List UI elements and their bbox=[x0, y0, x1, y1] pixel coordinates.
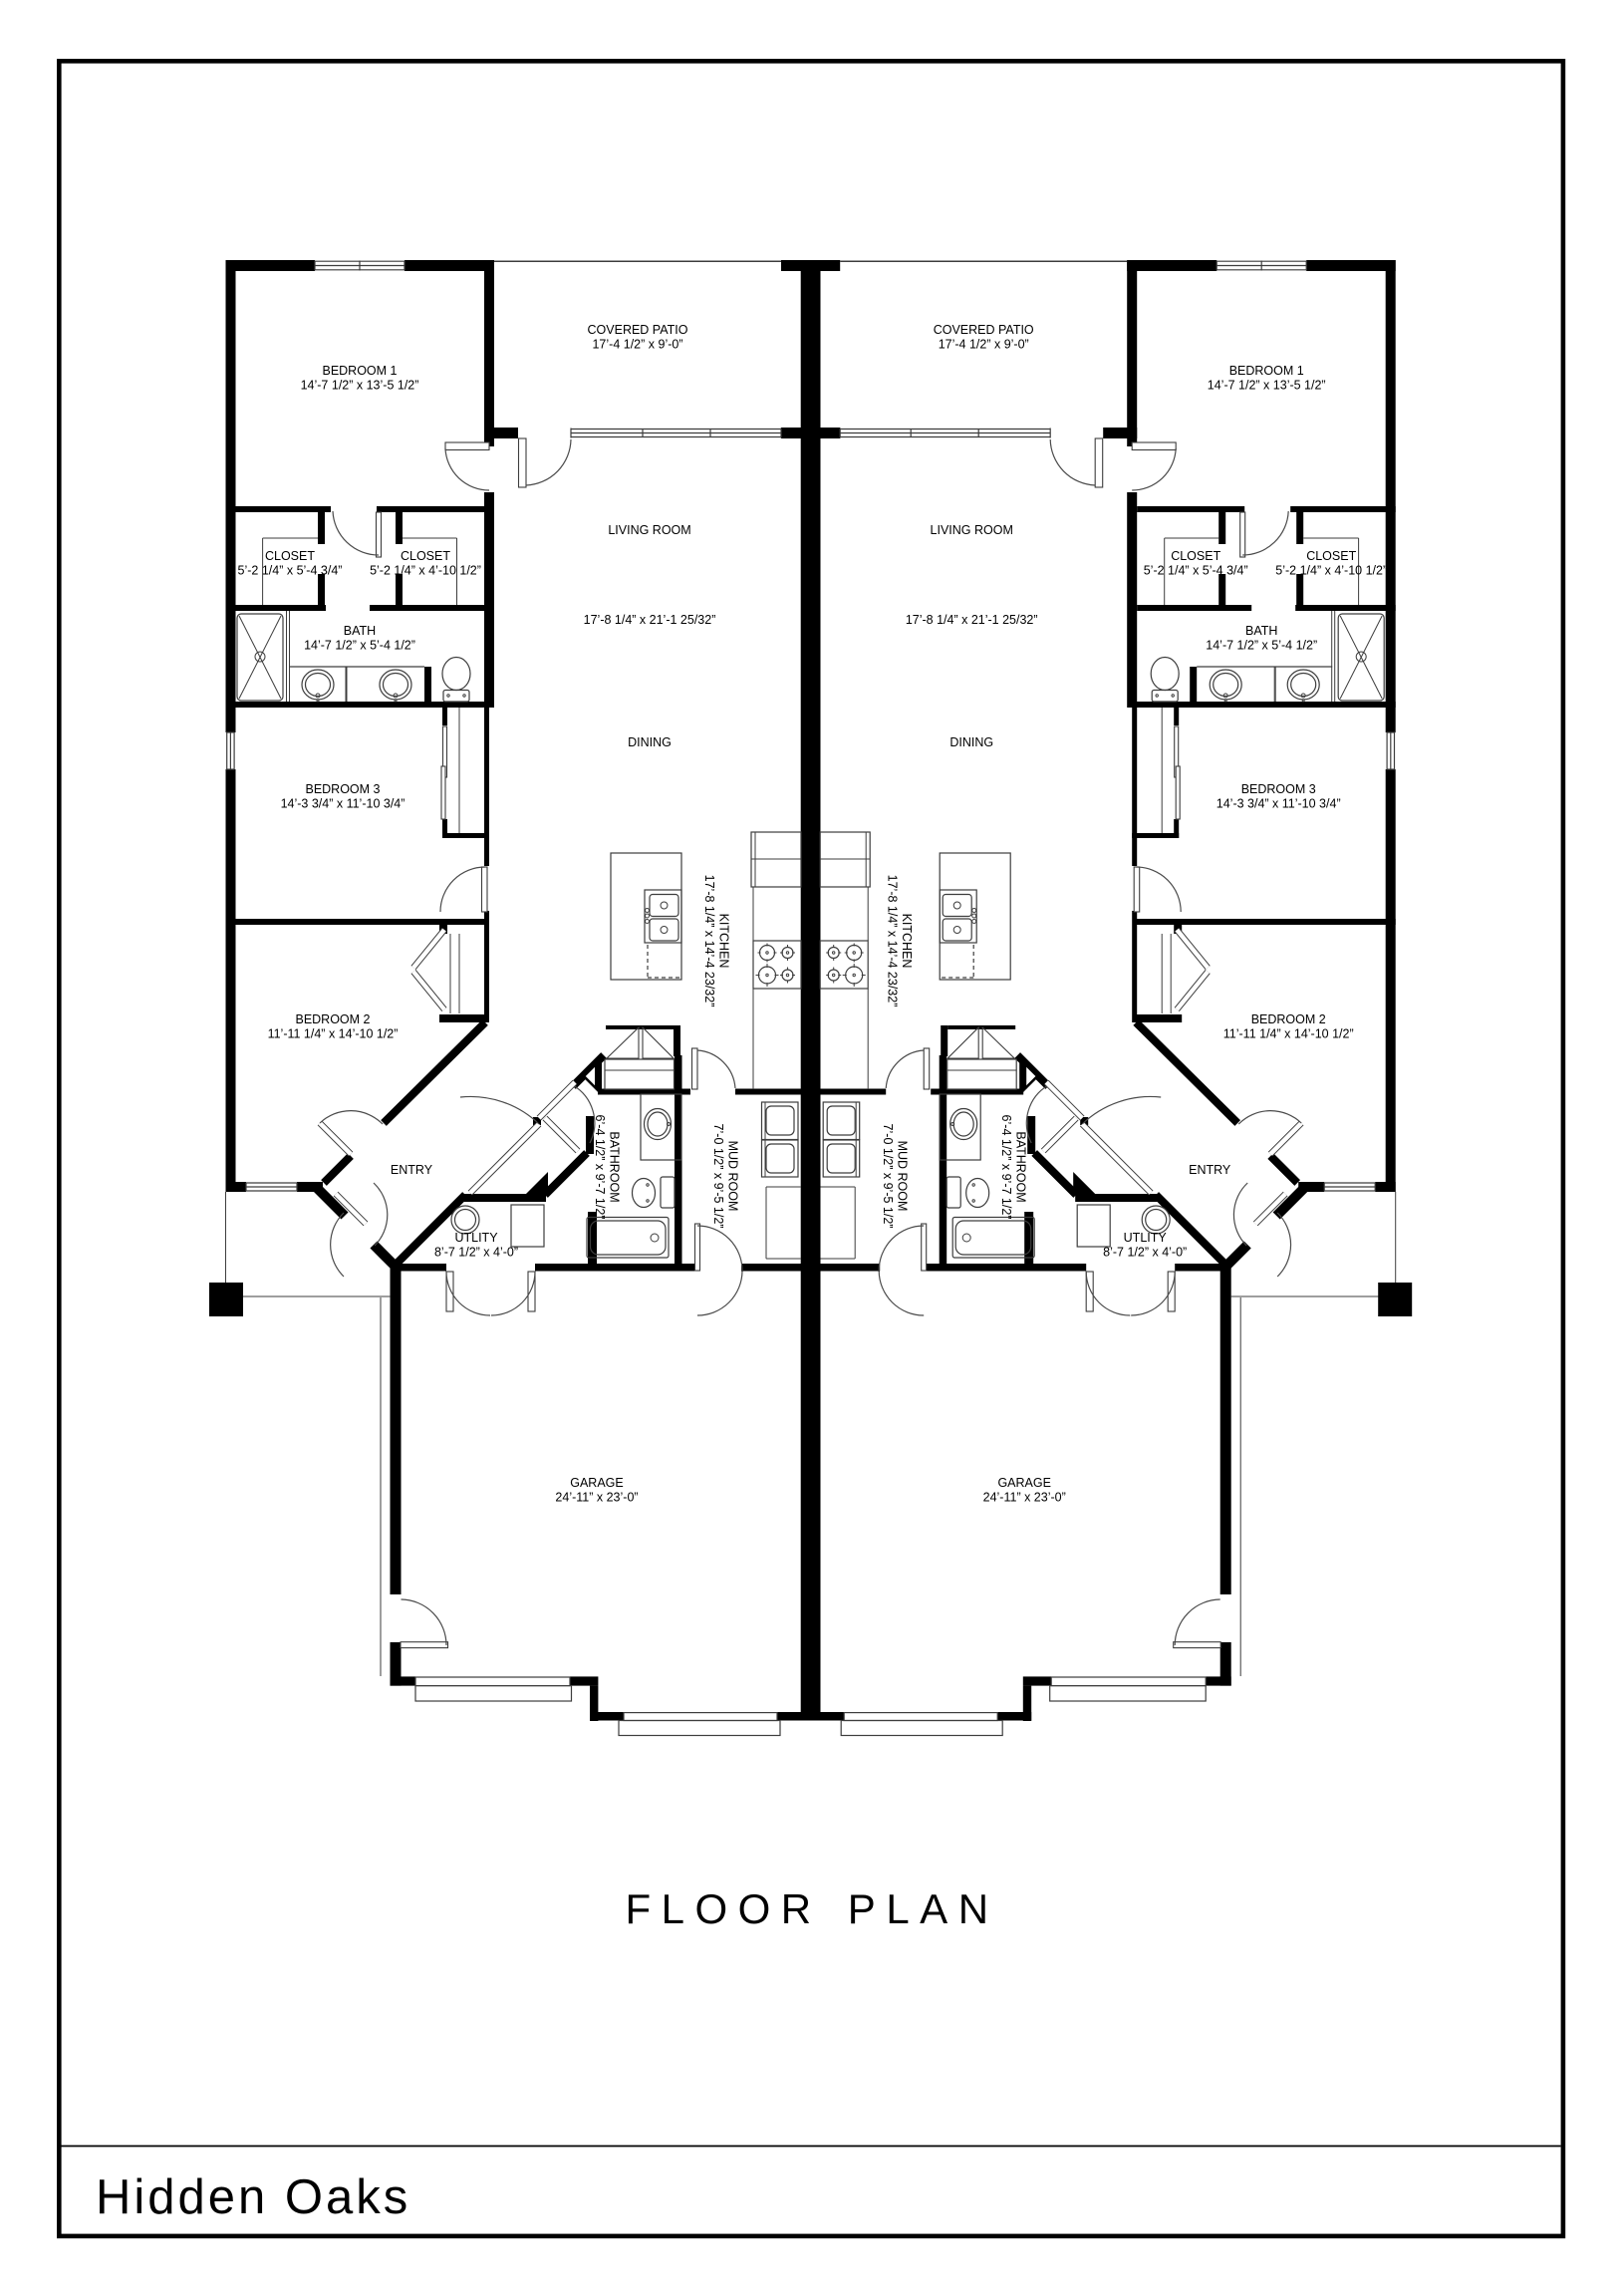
svg-text:17’-8 1/4” x 21’-1 25/32”: 17’-8 1/4” x 21’-1 25/32” bbox=[906, 613, 1038, 627]
svg-text:7’-0 1/2” x 9’-5 1/2”: 7’-0 1/2” x 9’-5 1/2” bbox=[881, 1124, 895, 1229]
svg-text:17’-8 1/4” x 14’-4 23/32”: 17’-8 1/4” x 14’-4 23/32” bbox=[702, 875, 716, 1007]
svg-text:11’-11 1/4” x 14’-10 1/2”: 11’-11 1/4” x 14’-10 1/2” bbox=[1223, 1027, 1354, 1041]
svg-text:24’-11” x 23’-0”: 24’-11” x 23’-0” bbox=[983, 1491, 1066, 1505]
svg-text:BEDROOM 3: BEDROOM 3 bbox=[1241, 782, 1316, 796]
svg-text:14’-7 1/2” x 5’-4 1/2”: 14’-7 1/2” x 5’-4 1/2” bbox=[1206, 639, 1317, 653]
svg-text:14’-7 1/2” x 13’-5 1/2”: 14’-7 1/2” x 13’-5 1/2” bbox=[301, 379, 419, 393]
svg-text:5’-2 1/4” x 4’-10 1/2”: 5’-2 1/4” x 4’-10 1/2” bbox=[1275, 564, 1387, 578]
svg-text:5’-2 1/4” x 4’-10 1/2”: 5’-2 1/4” x 4’-10 1/2” bbox=[370, 564, 481, 578]
svg-text:ENTRY: ENTRY bbox=[1189, 1163, 1231, 1177]
svg-text:BEDROOM 1: BEDROOM 1 bbox=[322, 364, 397, 378]
svg-text:GARAGE: GARAGE bbox=[997, 1476, 1051, 1490]
svg-text:14’-3 3/4” x 11’-10 3/4”: 14’-3 3/4” x 11’-10 3/4” bbox=[281, 797, 405, 811]
svg-text:BEDROOM 1: BEDROOM 1 bbox=[1229, 364, 1304, 378]
svg-text:MUD ROOM: MUD ROOM bbox=[726, 1141, 740, 1212]
svg-text:KITCHEN: KITCHEN bbox=[900, 914, 914, 969]
svg-text:Hidden Oaks: Hidden Oaks bbox=[96, 2170, 410, 2224]
svg-text:DINING: DINING bbox=[949, 735, 993, 749]
svg-text:KITCHEN: KITCHEN bbox=[717, 914, 731, 969]
svg-text:14’-7 1/2” x 5’-4 1/2”: 14’-7 1/2” x 5’-4 1/2” bbox=[304, 639, 415, 653]
svg-text:24’-11” x 23’-0”: 24’-11” x 23’-0” bbox=[555, 1491, 638, 1505]
svg-text:11’-11 1/4” x 14’-10 1/2”: 11’-11 1/4” x 14’-10 1/2” bbox=[268, 1027, 399, 1041]
svg-text:6’-4 1/2” x 9’-7 1/2”: 6’-4 1/2” x 9’-7 1/2” bbox=[999, 1115, 1013, 1220]
svg-text:BATHROOM: BATHROOM bbox=[1014, 1131, 1028, 1202]
svg-text:CLOSET: CLOSET bbox=[1171, 549, 1220, 563]
svg-text:LIVING ROOM: LIVING ROOM bbox=[931, 523, 1013, 537]
svg-text:5’-2 1/4” x 5’-4 3/4”: 5’-2 1/4” x 5’-4 3/4” bbox=[1144, 564, 1248, 578]
svg-text:BATH: BATH bbox=[344, 624, 376, 638]
svg-text:5’-2 1/4” x 5’-4 3/4”: 5’-2 1/4” x 5’-4 3/4” bbox=[238, 564, 343, 578]
svg-text:UTLITY: UTLITY bbox=[454, 1231, 498, 1245]
svg-text:GARAGE: GARAGE bbox=[570, 1476, 624, 1490]
svg-text:FLOOR PLAN: FLOOR PLAN bbox=[625, 1885, 998, 1932]
svg-text:BATH: BATH bbox=[1245, 624, 1277, 638]
svg-text:7’-0 1/2” x 9’-5 1/2”: 7’-0 1/2” x 9’-5 1/2” bbox=[711, 1124, 725, 1229]
svg-text:8’-7 1/2” x 4’-0”: 8’-7 1/2” x 4’-0” bbox=[434, 1246, 518, 1260]
svg-text:COVERED PATIO: COVERED PATIO bbox=[588, 323, 688, 337]
svg-text:14’-3 3/4” x 11’-10 3/4”: 14’-3 3/4” x 11’-10 3/4” bbox=[1216, 797, 1341, 811]
svg-text:LIVING ROOM: LIVING ROOM bbox=[608, 523, 690, 537]
svg-text:14’-7 1/2” x 13’-5 1/2”: 14’-7 1/2” x 13’-5 1/2” bbox=[1208, 379, 1326, 393]
svg-text:17’-8 1/4” x 14’-4 23/32”: 17’-8 1/4” x 14’-4 23/32” bbox=[886, 875, 900, 1007]
svg-text:CLOSET: CLOSET bbox=[401, 549, 450, 563]
svg-text:MUD ROOM: MUD ROOM bbox=[896, 1141, 910, 1212]
svg-text:6’-4 1/2” x 9’-7 1/2”: 6’-4 1/2” x 9’-7 1/2” bbox=[593, 1115, 607, 1220]
svg-text:CLOSET: CLOSET bbox=[265, 549, 315, 563]
svg-text:8’-7 1/2” x 4’-0”: 8’-7 1/2” x 4’-0” bbox=[1103, 1246, 1187, 1260]
svg-text:BEDROOM 3: BEDROOM 3 bbox=[305, 782, 380, 796]
svg-text:ENTRY: ENTRY bbox=[391, 1163, 433, 1177]
svg-text:BEDROOM 2: BEDROOM 2 bbox=[295, 1012, 370, 1026]
svg-text:UTLITY: UTLITY bbox=[1124, 1231, 1168, 1245]
svg-text:CLOSET: CLOSET bbox=[1306, 549, 1356, 563]
svg-text:COVERED PATIO: COVERED PATIO bbox=[934, 323, 1034, 337]
svg-text:BATHROOM: BATHROOM bbox=[608, 1131, 622, 1202]
svg-text:BEDROOM 2: BEDROOM 2 bbox=[1251, 1012, 1326, 1026]
svg-text:17’-8 1/4” x 21’-1 25/32”: 17’-8 1/4” x 21’-1 25/32” bbox=[584, 613, 716, 627]
svg-text:17’-4 1/2” x 9’-0”: 17’-4 1/2” x 9’-0” bbox=[592, 338, 682, 352]
svg-text:17’-4 1/2” x 9’-0”: 17’-4 1/2” x 9’-0” bbox=[939, 338, 1029, 352]
svg-text:DINING: DINING bbox=[628, 735, 672, 749]
